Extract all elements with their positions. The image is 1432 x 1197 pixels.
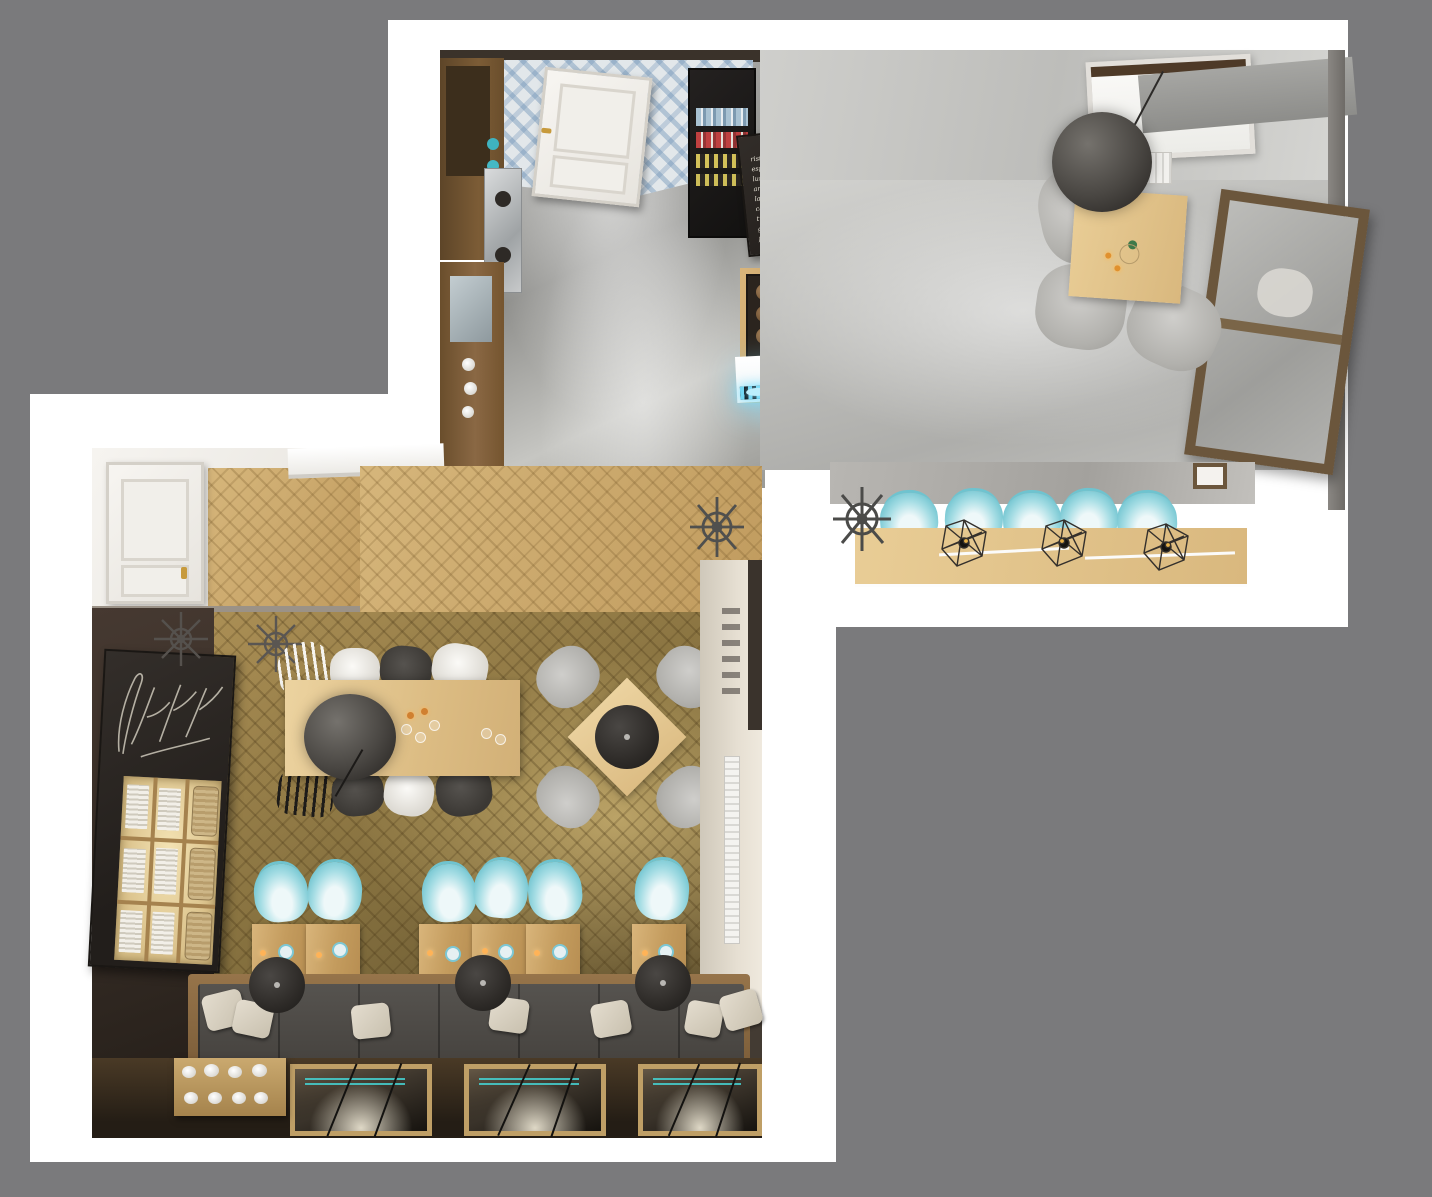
door-panel [550, 155, 629, 195]
cup [462, 358, 475, 371]
table-candle [407, 712, 414, 719]
framed-artwork [464, 1064, 606, 1136]
table-candle [482, 948, 488, 954]
table-candle [1114, 265, 1120, 271]
sink-drain [495, 191, 511, 207]
pendant-lamp-dome-dark [249, 957, 305, 1013]
table-plate [498, 944, 514, 960]
magazine-stack [125, 784, 149, 829]
pillow [683, 999, 724, 1039]
drinking-glass [481, 728, 492, 739]
cup [204, 1064, 219, 1077]
cup [182, 1066, 196, 1078]
drinking-glass [429, 720, 440, 731]
magazine-stack [154, 848, 178, 895]
cup [254, 1092, 268, 1104]
cup [462, 406, 474, 418]
wire-pendant-lamp [1038, 518, 1090, 568]
right-wall-dark-trim [748, 560, 762, 730]
door-panel [553, 83, 636, 159]
chalk-script-lettering [100, 655, 234, 780]
shelf-divider [117, 900, 215, 909]
table-candle [1105, 252, 1111, 258]
sink-drain [495, 247, 511, 263]
cup [232, 1092, 246, 1104]
framed-artwork [290, 1064, 432, 1136]
table-candle [260, 950, 266, 956]
table-candle [316, 952, 322, 958]
lamp-fitting [480, 980, 486, 986]
pillow [350, 1002, 391, 1040]
coat-stand [148, 610, 214, 668]
ship-wheel-decor [688, 494, 746, 560]
pendant-lamp-dome-dark [595, 705, 659, 769]
lamp-fitting [624, 734, 630, 740]
radiator-lower-room [724, 756, 740, 944]
cup [208, 1092, 222, 1104]
wall-hooks [722, 604, 740, 694]
cafe-top-view-collage: NABÍDKA: ristretto......30,- espresso...… [0, 0, 1432, 1197]
vestibule-parquet [208, 468, 362, 612]
pendant-lamp-dome-dark [635, 955, 691, 1011]
table-plate [1119, 243, 1140, 264]
door-panel [121, 565, 189, 597]
cup [228, 1066, 242, 1078]
fridge-shelf-bottles-blue [696, 108, 748, 126]
wire-pendant-lamp [938, 518, 990, 568]
picture-light-rod [550, 1063, 577, 1137]
table-plate [332, 942, 348, 958]
table-candle [534, 950, 540, 956]
drinking-glass [401, 724, 412, 735]
mirror-crossbar [1212, 317, 1342, 345]
entry-door [106, 462, 204, 604]
cup-shelf [174, 1058, 286, 1116]
drinking-glass [415, 732, 426, 743]
wire-pendant-lamp [1140, 522, 1192, 572]
magazine-shelf-niche [114, 776, 221, 965]
door-panel [121, 479, 189, 561]
magazine-stack [122, 848, 146, 893]
pendant-lamp-dome-dark [455, 955, 511, 1011]
drinking-glass [495, 734, 506, 745]
cup [464, 382, 477, 395]
shelf-divider [120, 836, 218, 845]
small-window [1193, 463, 1227, 489]
picture-light-rod [715, 1063, 741, 1138]
teal-dish [487, 138, 499, 150]
wicker-basket [187, 848, 216, 901]
ship-wheel-decor [830, 484, 894, 554]
cup [184, 1092, 198, 1104]
table-candle [421, 708, 428, 715]
pendant-lamp-large [1052, 112, 1152, 212]
table-candle [427, 950, 433, 956]
wicker-basket [191, 786, 220, 837]
shelf-dark-niche [446, 66, 490, 176]
table-candle [642, 950, 648, 956]
cabinet-steel-top [450, 276, 492, 342]
lamp-fitting [274, 982, 280, 988]
magazine-stack [119, 910, 143, 953]
door-handle [541, 128, 551, 134]
wall-chalkboard-art [88, 649, 236, 973]
artwork-teal-text [653, 1075, 741, 1085]
door-handle [181, 567, 187, 579]
wicker-basket [184, 911, 212, 960]
framed-artwork [638, 1064, 762, 1136]
artwork-teal-text [479, 1075, 579, 1085]
lower-room-lounge [92, 446, 764, 1138]
table-plate [445, 946, 461, 962]
pillow [589, 999, 632, 1039]
table-plate [552, 944, 568, 960]
lamp-fitting [660, 980, 666, 986]
artwork-teal-text [305, 1075, 405, 1085]
magazine-stack [151, 912, 175, 955]
mirror-chair-reflection [1254, 265, 1315, 320]
cup [252, 1064, 267, 1077]
magazine-stack [157, 788, 181, 831]
entrance-door-top [532, 67, 653, 208]
